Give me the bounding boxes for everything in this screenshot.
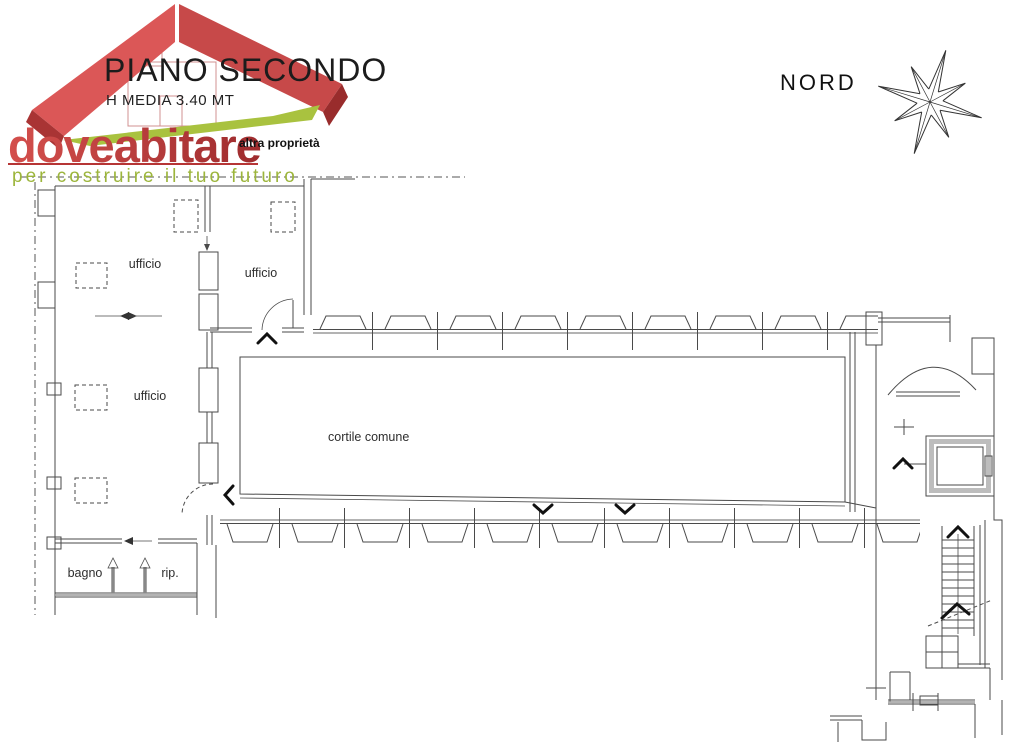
elevator: [904, 436, 994, 496]
brand-logo-text: doveabitare: [8, 122, 261, 169]
north-label: NORD: [780, 70, 857, 96]
property-boundary-lines: [20, 177, 465, 615]
door-chevron-icon: [225, 486, 233, 504]
room-label-office-3: ufficio: [134, 389, 166, 403]
room-label-bathroom: bagno: [68, 566, 103, 580]
door-chevron-icon: [894, 459, 912, 468]
bottom-corridor-window-wall: [220, 506, 920, 548]
room-label-office-1: ufficio: [129, 257, 161, 271]
brand-underline: [8, 163, 258, 165]
stairwell-bottom-walls: [830, 664, 1002, 742]
room-label-storage: rip.: [161, 566, 178, 580]
room-label-office-2: ufficio: [245, 266, 277, 280]
courtyard-right-wall: [845, 332, 876, 512]
compass-star-icon: [878, 50, 981, 153]
left-office-walls: [47, 332, 233, 549]
other-property-label: altra proprietà: [239, 136, 320, 150]
page-title: PIANO SECONDO: [104, 52, 387, 89]
stairs-direction-arrow-icon: [942, 604, 969, 618]
office-block-bottom-wall: [210, 328, 304, 343]
floor-plan-page: ufficio ufficio ufficio cortile comune b…: [0, 0, 1024, 743]
page-subtitle: H MEDIA 3.40 MT: [106, 92, 234, 109]
room-label-courtyard: cortile comune: [328, 430, 409, 444]
brand-tagline: per costruire il tuo futuro: [12, 166, 298, 188]
skylight-squares: [75, 200, 295, 503]
door-chevron-icon: [258, 334, 276, 343]
arched-opening: [888, 367, 976, 395]
staircase: [926, 520, 992, 668]
top-corridor-window-wall: [313, 312, 878, 350]
entrance-arrow-icons: [95, 312, 162, 320]
